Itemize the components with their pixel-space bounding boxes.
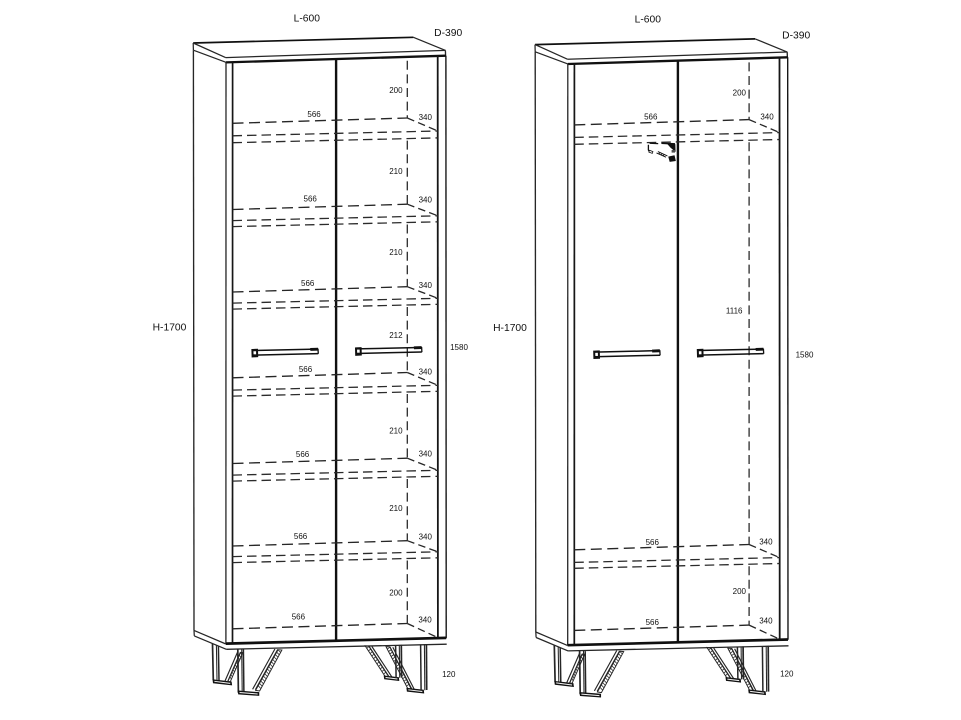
svg-text:340: 340 <box>419 281 433 290</box>
svg-text:340: 340 <box>419 113 433 122</box>
svg-text:566: 566 <box>646 618 660 627</box>
svg-text:566: 566 <box>296 450 310 459</box>
svg-text:1580: 1580 <box>450 343 468 352</box>
svg-text:H-1700: H-1700 <box>153 322 187 333</box>
svg-text:340: 340 <box>419 533 433 542</box>
svg-text:200: 200 <box>389 86 403 95</box>
svg-text:120: 120 <box>442 670 456 679</box>
svg-text:566: 566 <box>307 110 321 119</box>
svg-text:210: 210 <box>389 426 403 435</box>
svg-text:566: 566 <box>301 279 315 288</box>
svg-text:566: 566 <box>292 613 306 622</box>
svg-text:340: 340 <box>419 450 433 459</box>
svg-text:566: 566 <box>304 195 318 204</box>
svg-text:340: 340 <box>759 617 773 626</box>
svg-text:200: 200 <box>389 588 403 597</box>
svg-text:566: 566 <box>294 532 308 541</box>
svg-text:566: 566 <box>299 365 313 374</box>
svg-text:340: 340 <box>419 195 433 204</box>
svg-text:1116: 1116 <box>726 307 743 316</box>
svg-text:L-600: L-600 <box>635 14 662 25</box>
svg-text:340: 340 <box>759 538 773 547</box>
svg-text:H-1700: H-1700 <box>493 323 527 334</box>
svg-text:D-390: D-390 <box>782 31 810 42</box>
svg-text:566: 566 <box>646 538 660 547</box>
svg-text:200: 200 <box>733 89 747 98</box>
svg-text:1580: 1580 <box>796 350 814 359</box>
svg-text:210: 210 <box>389 248 403 257</box>
svg-text:340: 340 <box>760 112 774 121</box>
svg-text:D-390: D-390 <box>434 28 462 39</box>
svg-text:120: 120 <box>780 670 794 679</box>
svg-text:200: 200 <box>733 587 747 596</box>
svg-text:212: 212 <box>389 331 403 340</box>
svg-text:340: 340 <box>418 615 432 624</box>
svg-text:210: 210 <box>389 167 403 176</box>
svg-text:L-600: L-600 <box>294 13 321 24</box>
svg-text:340: 340 <box>419 367 433 376</box>
svg-text:210: 210 <box>389 504 403 513</box>
svg-text:566: 566 <box>644 112 658 121</box>
